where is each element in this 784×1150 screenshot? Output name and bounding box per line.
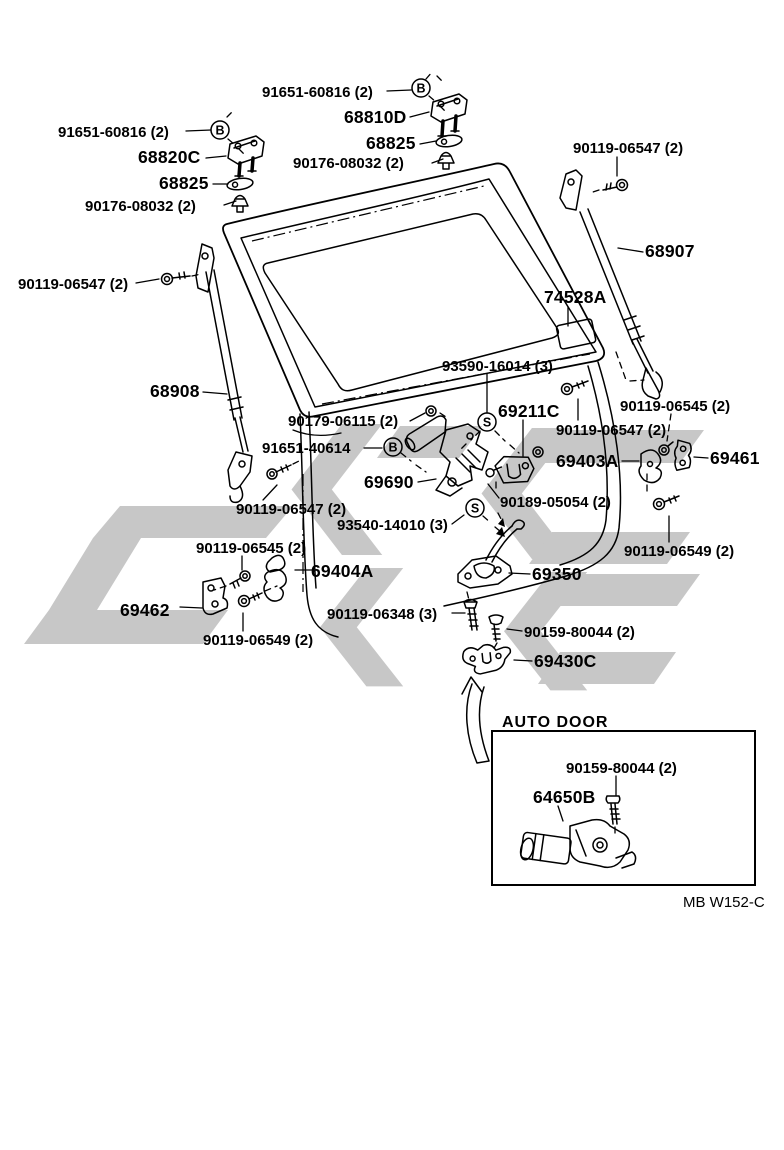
label-68820c: 68820C xyxy=(138,147,201,167)
label-90176-08032-rh: 90176-08032 (2) xyxy=(293,155,404,172)
figure-code: MB W152-C xyxy=(683,894,765,911)
marker-s-lock: S xyxy=(478,413,496,431)
label-90119-06547-lower-lh: 90119-06547 (2) xyxy=(236,501,346,518)
marker-b-upper-left-label: B xyxy=(215,124,224,138)
label-69690: 69690 xyxy=(364,472,414,492)
label-93540-14010: 93540-14010 (3) xyxy=(337,517,448,534)
label-68908: 68908 xyxy=(150,381,200,401)
marker-s-lock-label: S xyxy=(483,416,491,430)
label-90119-06545-lh: 90119-06545 (2) xyxy=(196,540,306,557)
label-91651-60816-rh: 91651-60816 (2) xyxy=(262,84,373,101)
bellcrank-clips xyxy=(264,555,286,601)
hinge-lower-left xyxy=(203,578,228,614)
inset-title: AUTO DOOR xyxy=(502,714,608,731)
bolt-latch xyxy=(464,592,478,630)
marker-b-lock-label: B xyxy=(388,441,397,455)
label-74528a: 74528A xyxy=(544,287,607,307)
label-69403a: 69403A xyxy=(556,451,619,471)
marker-b-upper-right: B xyxy=(412,79,430,97)
stay-screw-lower-left xyxy=(267,460,301,479)
marker-b-upper-right-label: B xyxy=(416,82,425,96)
label-90119-06547-stay-lh: 90119-06547 (2) xyxy=(18,276,128,293)
label-90159-80044-inset: 90159-80044 (2) xyxy=(566,760,677,777)
label-93590-16014: 93590-16014 (3) xyxy=(442,358,553,375)
parts-diagram-page: B B B S S 91651-60816 (2) 68810D 68825 9… xyxy=(0,0,784,1150)
marker-s-latch-label: S xyxy=(471,502,479,516)
label-69350: 69350 xyxy=(532,564,582,584)
label-90119-06348: 90119-06348 (3) xyxy=(327,606,437,623)
label-90189-05054: 90189-05054 (2) xyxy=(500,494,611,511)
label-91651-40614: 91651-40614 xyxy=(262,440,351,457)
label-64650b: 64650B xyxy=(533,787,596,807)
label-69404a: 69404A xyxy=(311,561,374,581)
label-69462: 69462 xyxy=(120,600,170,620)
back-door-stay-left xyxy=(196,244,252,502)
stay-screw-upper-left xyxy=(162,272,202,285)
label-90119-06547-lower-rh: 90119-06547 (2) xyxy=(556,422,666,439)
label-90119-06547-stay-rh: 90119-06547 (2) xyxy=(573,140,683,157)
label-90176-08032-lh: 90176-08032 (2) xyxy=(85,198,196,215)
label-90119-06545-rh: 90119-06545 (2) xyxy=(620,398,730,415)
label-69461: 69461 xyxy=(710,448,760,468)
washer-upper-left xyxy=(226,177,253,192)
screw-hinge-left xyxy=(214,571,250,590)
marker-s-latch: S xyxy=(466,499,484,517)
label-68810d: 68810D xyxy=(344,107,407,127)
inset-box xyxy=(492,731,755,885)
bolt-hinge-right xyxy=(654,496,680,510)
grommet-upper-left xyxy=(232,196,248,213)
label-69430c: 69430C xyxy=(534,651,597,671)
label-68907: 68907 xyxy=(645,241,695,261)
label-91651-60816-lh: 91651-60816 (2) xyxy=(58,124,169,141)
latch-assembly xyxy=(458,520,524,588)
bolt-hinge-left xyxy=(239,586,278,607)
label-90119-06549-rh: 90119-06549 (2) xyxy=(624,543,734,560)
label-90119-06549-lh: 90119-06549 (2) xyxy=(203,632,313,649)
label-68825-rh: 68825 xyxy=(366,133,416,153)
label-69211c: 69211C xyxy=(498,401,560,421)
label-68825-lh: 68825 xyxy=(159,173,209,193)
back-door-parts-diagram: B B B S S 91651-60816 (2) 68810D 68825 9… xyxy=(0,0,784,1150)
striker-lower-part xyxy=(462,642,513,675)
label-90179-06115: 90179-06115 (2) xyxy=(288,413,398,430)
inset-arrow xyxy=(462,677,489,763)
grommet-upper-right xyxy=(438,153,454,170)
lock-grommet xyxy=(426,406,436,416)
hinge-upper-left xyxy=(228,136,264,176)
hinge-upper-right xyxy=(431,94,467,136)
power-door-motor xyxy=(519,820,636,868)
stay-screw-upper-right xyxy=(590,180,628,194)
label-90159-80044: 90159-80044 (2) xyxy=(524,624,635,641)
marker-b-upper-left: B xyxy=(211,121,229,139)
